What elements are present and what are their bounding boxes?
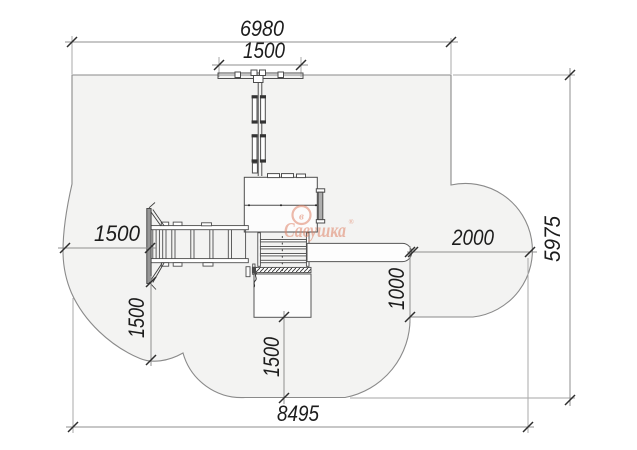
- technical-drawing-sheet: в Савушка ® 6980: [0, 0, 637, 450]
- dim-label-1500-swing: 1500: [243, 38, 286, 63]
- slide: [307, 243, 412, 261]
- swing-center-bracket-a: [251, 70, 257, 76]
- swing-post-foot: [252, 163, 257, 173]
- swing-center-bracket-b: [260, 70, 266, 76]
- slide-outline: [307, 243, 412, 261]
- dim-label-2000: 2000: [451, 225, 495, 250]
- platform-top-tab-3: [297, 174, 306, 178]
- stairs-side-block: [246, 267, 250, 277]
- dim-label-1500-bottomcenter: 1500: [259, 336, 284, 377]
- lower-pad: [254, 273, 311, 317]
- side-climbing-panel: [318, 192, 323, 219]
- platform-top-tab-1: [268, 174, 280, 178]
- stairs-threshold-hatched: [252, 267, 311, 272]
- watermark-brand-text: Савушка: [284, 218, 346, 242]
- platform-fixing-dot-2: [280, 204, 282, 206]
- playground-plan-drawing: в Савушка ® 6980: [0, 0, 637, 450]
- ramp-top-rail: [151, 226, 249, 230]
- platform-fixing-dot-1: [248, 204, 250, 206]
- swing-beam-bracket-right: [278, 72, 284, 78]
- swing-center-plate: [254, 76, 264, 83]
- dim-label-1000: 1000: [384, 267, 409, 310]
- platform-fixing-dot-3: [315, 204, 317, 206]
- stairs-threshold-end: [252, 267, 256, 274]
- swing-beam-bracket-left: [235, 72, 241, 78]
- stairs-step-3: [260, 254, 306, 256]
- ramp-bottom-rail: [151, 259, 249, 263]
- stairs-step-4: [260, 260, 306, 262]
- sandbox: [254, 274, 311, 317]
- platform-top-tab-2: [282, 174, 294, 178]
- stairs-step-2: [260, 247, 306, 249]
- dim-label-8495: 8495: [277, 401, 320, 426]
- side-panel-cap-top: [316, 189, 324, 192]
- ramp-end-panel: [147, 209, 151, 284]
- watermark-registered-mark: ®: [349, 218, 355, 226]
- dim-label-1500-bottomleft: 1500: [124, 297, 149, 338]
- dim-label-5975: 5975: [540, 215, 565, 262]
- dim-label-1500-left: 1500: [94, 221, 141, 246]
